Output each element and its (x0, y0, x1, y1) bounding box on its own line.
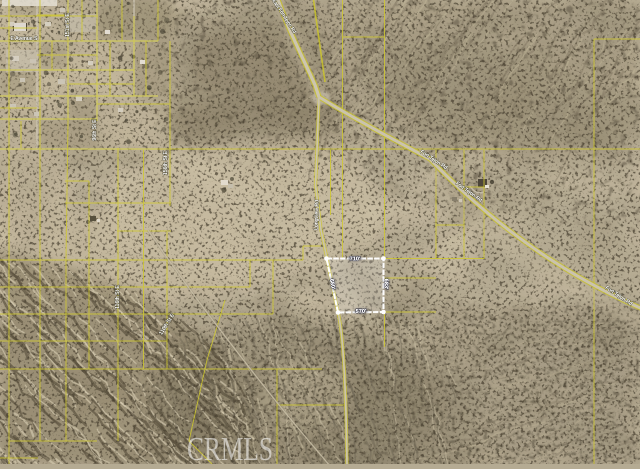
svg-text:E Avenue S: E Avenue S (10, 36, 38, 42)
svg-text:CRMLS: CRMLS (187, 431, 273, 464)
svg-text:710': 710' (350, 257, 361, 263)
svg-text:156th St E: 156th St E (163, 150, 169, 175)
svg-text:683': 683' (382, 279, 388, 291)
svg-text:570': 570' (356, 309, 367, 315)
svg-text:96th St E: 96th St E (92, 119, 98, 141)
svg-text:151st St E: 151st St E (65, 12, 71, 36)
svg-text:116th St E: 116th St E (115, 285, 121, 309)
svg-text:Longview Rd: Longview Rd (313, 200, 320, 230)
